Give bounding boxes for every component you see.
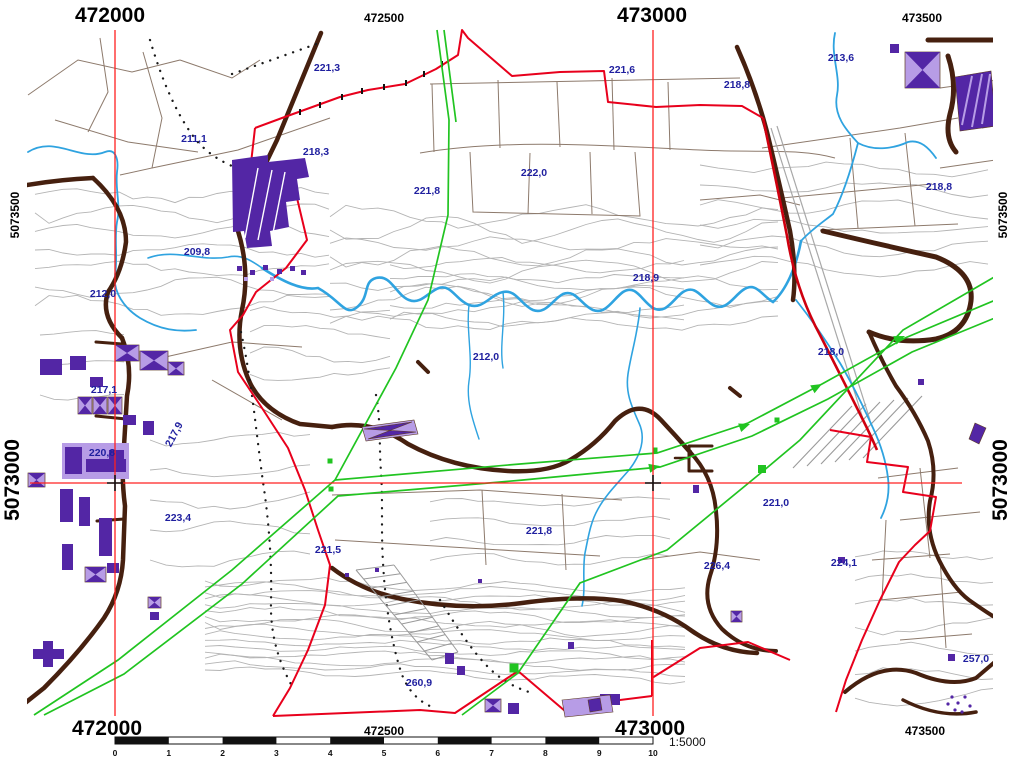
elevation-label: 223,4 (165, 512, 191, 524)
scale-tick-label: 2 (220, 748, 225, 758)
building (693, 485, 699, 493)
utility-node (328, 459, 333, 464)
coordinate-label: 5073000 (1, 439, 24, 521)
scale-tick-label: 4 (328, 748, 333, 758)
scale-tick-label: 5 (382, 748, 387, 758)
map-sheet: 4720004725004730004735004720004725004730… (0, 0, 1024, 763)
elevation-label: 221,8 (526, 525, 552, 537)
elevation-label: 213,6 (828, 52, 854, 64)
coordinate-label: 472000 (75, 4, 145, 27)
elevation-label: 212,0 (473, 351, 499, 363)
elevation-label: 218,8 (724, 79, 750, 91)
scale-tick-label: 3 (274, 748, 279, 758)
scale-tick-label: 7 (489, 748, 494, 758)
building (457, 666, 465, 675)
scale-bar: 0123456789101:5000 (113, 735, 706, 758)
elevation-label: 221,0 (763, 497, 789, 509)
elevation-label: 221,8 (414, 185, 440, 197)
elevation-label: 211,1 (181, 133, 207, 145)
elevation-label: 221,5 (315, 544, 341, 556)
warehouse-building (562, 695, 613, 717)
elevation-label: 220,8 (89, 447, 115, 459)
elevation-label: 224,1 (831, 557, 857, 569)
coordinate-label: 5073000 (989, 439, 1012, 521)
elevation-label: 226,4 (704, 560, 730, 572)
building (43, 641, 53, 667)
scale-tick-label: 9 (597, 748, 602, 758)
map-canvas: 4720004725004730004735004720004725004730… (0, 0, 1024, 763)
coordinate-label: 473500 (902, 11, 942, 25)
elevation-label: 217,9 (163, 420, 186, 449)
elevation-label: 218,8 (926, 181, 952, 193)
utility-node (758, 465, 766, 473)
parcel-lines (28, 38, 1020, 648)
coordinate-label: 473000 (617, 4, 687, 27)
utility-node (329, 487, 334, 492)
coordinate-label: 472500 (364, 11, 404, 25)
elevation-label: 218,3 (303, 146, 329, 158)
coordinate-labels: 4720004725004730004735004720004725004730… (1, 4, 1012, 740)
terrace-lines (356, 565, 458, 660)
scale-tick-label: 6 (435, 748, 440, 758)
building (890, 44, 899, 53)
flow-arrow-icon (810, 380, 824, 393)
building (143, 421, 154, 435)
boundaries (230, 30, 936, 716)
elevation-label: 209,8 (184, 246, 210, 258)
building (948, 654, 955, 661)
building (508, 703, 519, 714)
elevation-label: 257,0 (963, 653, 989, 665)
building (568, 642, 574, 649)
building (918, 379, 924, 385)
roads (0, 33, 1008, 714)
building (150, 612, 159, 620)
elevation-label: 217,1 (91, 384, 117, 396)
coordinate-label: 473500 (905, 724, 945, 738)
scale-tick-label: 1 (166, 748, 171, 758)
scale-ratio: 1:5000 (669, 735, 706, 749)
elevation-label: 221,6 (609, 64, 635, 76)
utility-node (775, 418, 780, 423)
elevation-label: 221,3 (314, 62, 340, 74)
building (40, 359, 62, 375)
elevation-label: 222,0 (521, 167, 547, 179)
scale-tick-label: 0 (113, 748, 118, 758)
scale-tick-label: 8 (543, 748, 548, 758)
coordinate-label: 5073500 (996, 191, 1010, 238)
building (70, 356, 86, 370)
utility-node (510, 664, 519, 673)
elevation-label: 212,0 (90, 288, 116, 300)
grid-cross-icon (645, 475, 661, 491)
elevation-label: 260,9 (406, 677, 432, 689)
coordinate-label: 5073500 (8, 191, 22, 238)
building (123, 415, 136, 425)
building (107, 563, 119, 573)
scale-tick-label: 10 (648, 748, 658, 758)
elevation-label: 218,0 (818, 346, 844, 358)
elevation-label: 218,9 (633, 272, 659, 284)
coordinate-label: 472500 (364, 724, 404, 738)
building (445, 653, 454, 664)
